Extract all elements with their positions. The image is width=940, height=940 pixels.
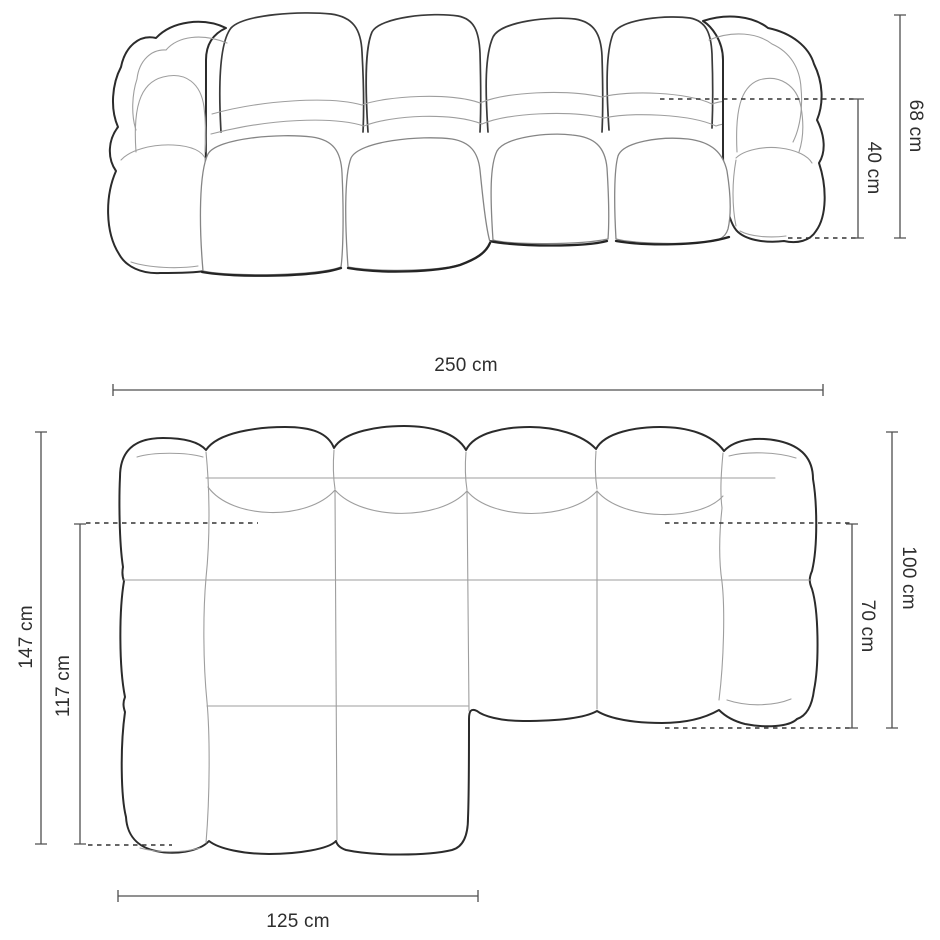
front-seat-cushions <box>489 134 730 245</box>
dimension-total-depth-left: 147 cm <box>16 432 47 844</box>
dimension-seat-depth: 70 cm <box>846 524 878 728</box>
front-elevation-view: 40 cm 68 cm <box>108 13 926 276</box>
dimension-chaise-depth: 117 cm <box>53 524 86 844</box>
dim-label-total-width: 250 cm <box>434 355 498 376</box>
dim-label-total-depth-right: 100 cm <box>898 546 919 610</box>
dim-label-chaise-width: 125 cm <box>266 911 330 932</box>
dimension-total-depth-right: 100 cm <box>886 432 919 728</box>
sofa-dimension-diagram: 40 cm 68 cm <box>0 0 940 940</box>
dim-label-total-depth-left: 147 cm <box>16 605 37 669</box>
dimension-total-width: 250 cm <box>113 355 823 396</box>
dim-label-chaise-depth: 117 cm <box>53 655 74 717</box>
dimension-chaise-width: 125 cm <box>118 890 478 932</box>
dim-label-seat-height: 40 cm <box>863 142 884 195</box>
front-chaise-cushions <box>200 136 490 276</box>
dimension-total-height: 68 cm <box>894 15 926 238</box>
dimension-seat-height: 40 cm <box>852 99 884 238</box>
diagram-svg: 40 cm 68 cm <box>0 0 940 940</box>
top-plan-view: 250 cm 147 cm 117 cm 100 cm 70 cm 125 cm <box>16 355 919 932</box>
dim-label-total-height: 68 cm <box>905 100 926 153</box>
dim-label-seat-depth: 70 cm <box>857 600 878 653</box>
